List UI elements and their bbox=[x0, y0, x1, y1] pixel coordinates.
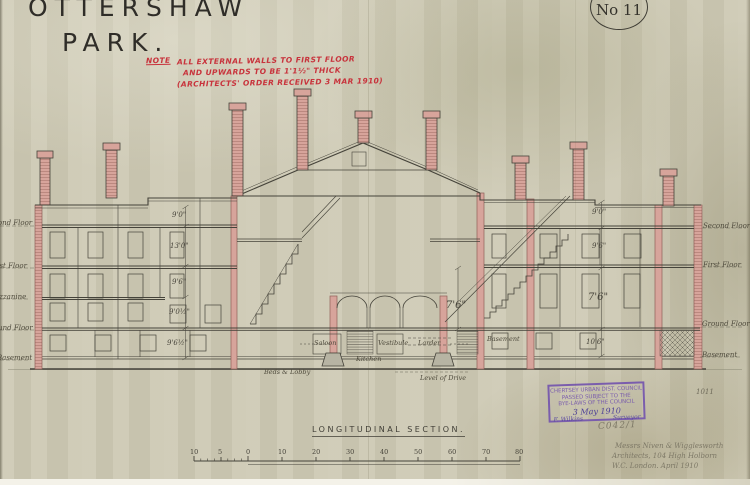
architect-line2: Architects, 104 High Holborn bbox=[612, 452, 717, 460]
scale-label-20: 20 bbox=[312, 448, 320, 456]
room-label-larder: Larder bbox=[418, 339, 440, 347]
sheet-right-edge-shadow bbox=[746, 0, 750, 485]
level-of-drive-label: Level of Drive bbox=[420, 374, 466, 382]
room-label-basement: Basement bbox=[487, 335, 520, 343]
dimension-lines bbox=[183, 200, 605, 360]
floor-label-left-second: Second Floor bbox=[0, 219, 32, 227]
floor-label-left-ground: Ground Floor bbox=[0, 324, 33, 332]
scale-label-0: 0 bbox=[246, 448, 250, 456]
reference-number: C042/1 bbox=[598, 420, 637, 432]
footings bbox=[322, 353, 454, 366]
sheet-title-line1: OTTERSHAW bbox=[28, 0, 249, 22]
floor-label-left-first: First Floor bbox=[0, 262, 27, 270]
staircase bbox=[250, 196, 570, 324]
architect-line1: Messrs Niven & Wigglesworth bbox=[615, 442, 723, 450]
scale-label-50: 50 bbox=[414, 448, 422, 456]
dim-right-4: 10'6" bbox=[586, 338, 605, 346]
chimneys bbox=[37, 89, 677, 206]
dim-left-1: 9'0" bbox=[172, 211, 186, 219]
floor-label-right-first: First Floor bbox=[703, 261, 741, 269]
scanned-drawing-sheet: OTTERSHAW PARK. No 11 NOTE ALL EXTERNAL … bbox=[0, 0, 750, 485]
architect-line3: W.C. London. April 1910 bbox=[612, 462, 698, 470]
basement-arches bbox=[330, 293, 447, 328]
stamp-signature: F. Wilkins bbox=[553, 416, 583, 424]
dim-center: 7'6" bbox=[446, 300, 466, 311]
scale-label-10: 10 bbox=[278, 448, 286, 456]
scale-label-80: 80 bbox=[515, 448, 523, 456]
floor-label-left-mezzanine: Mezzanine bbox=[0, 293, 26, 301]
scale-label-40: 40 bbox=[380, 448, 388, 456]
paper-crease-2 bbox=[575, 0, 576, 485]
scale-label-5: 5 bbox=[218, 448, 222, 456]
scale-label-70: 70 bbox=[482, 448, 490, 456]
dim-right-3: 7'6" bbox=[588, 292, 608, 303]
floor-label-left-basement: Basement bbox=[0, 354, 32, 362]
dim-left-2: 13'0" bbox=[170, 242, 189, 250]
floor-label-right-ground: Ground Floor bbox=[702, 320, 750, 328]
note-label: NOTE bbox=[146, 56, 171, 65]
room-label-beds-lobby: Beds & Lobby bbox=[264, 368, 310, 376]
paper-crease bbox=[368, 0, 369, 485]
scale-label-60: 60 bbox=[448, 448, 456, 456]
dim-right-1: 9'0" bbox=[592, 208, 606, 216]
scale-bar bbox=[194, 456, 520, 465]
dim-left-4: 9'0½" bbox=[169, 308, 190, 316]
dim-left-5: 9'6½" bbox=[167, 339, 188, 347]
floor-label-right-basement: Basement bbox=[702, 351, 737, 359]
windows bbox=[50, 232, 641, 351]
floor-label-right-second: Second Floor bbox=[703, 222, 750, 230]
room-label-vestibule: Vestibule bbox=[378, 339, 408, 347]
drawing-number: No 11 bbox=[596, 1, 642, 19]
dim-right-2: 9'6" bbox=[592, 242, 606, 250]
archive-number: 1011 bbox=[696, 388, 714, 396]
section-title: LONGITUDINAL SECTION. bbox=[312, 425, 465, 437]
council-approval-stamp: CHERTSEY URBAN DIST. COUNCIL PASSED SUBJ… bbox=[547, 381, 645, 422]
scan-bottom-edge bbox=[0, 479, 750, 485]
scale-label-30: 30 bbox=[346, 448, 354, 456]
sheet-title-line2: PARK. bbox=[62, 28, 169, 57]
room-label-saloon: Saloon bbox=[314, 339, 336, 347]
sheet-left-edge-shadow bbox=[0, 0, 3, 485]
dim-left-3: 9'6" bbox=[172, 278, 186, 286]
scale-label-10a: 10 bbox=[190, 448, 198, 456]
